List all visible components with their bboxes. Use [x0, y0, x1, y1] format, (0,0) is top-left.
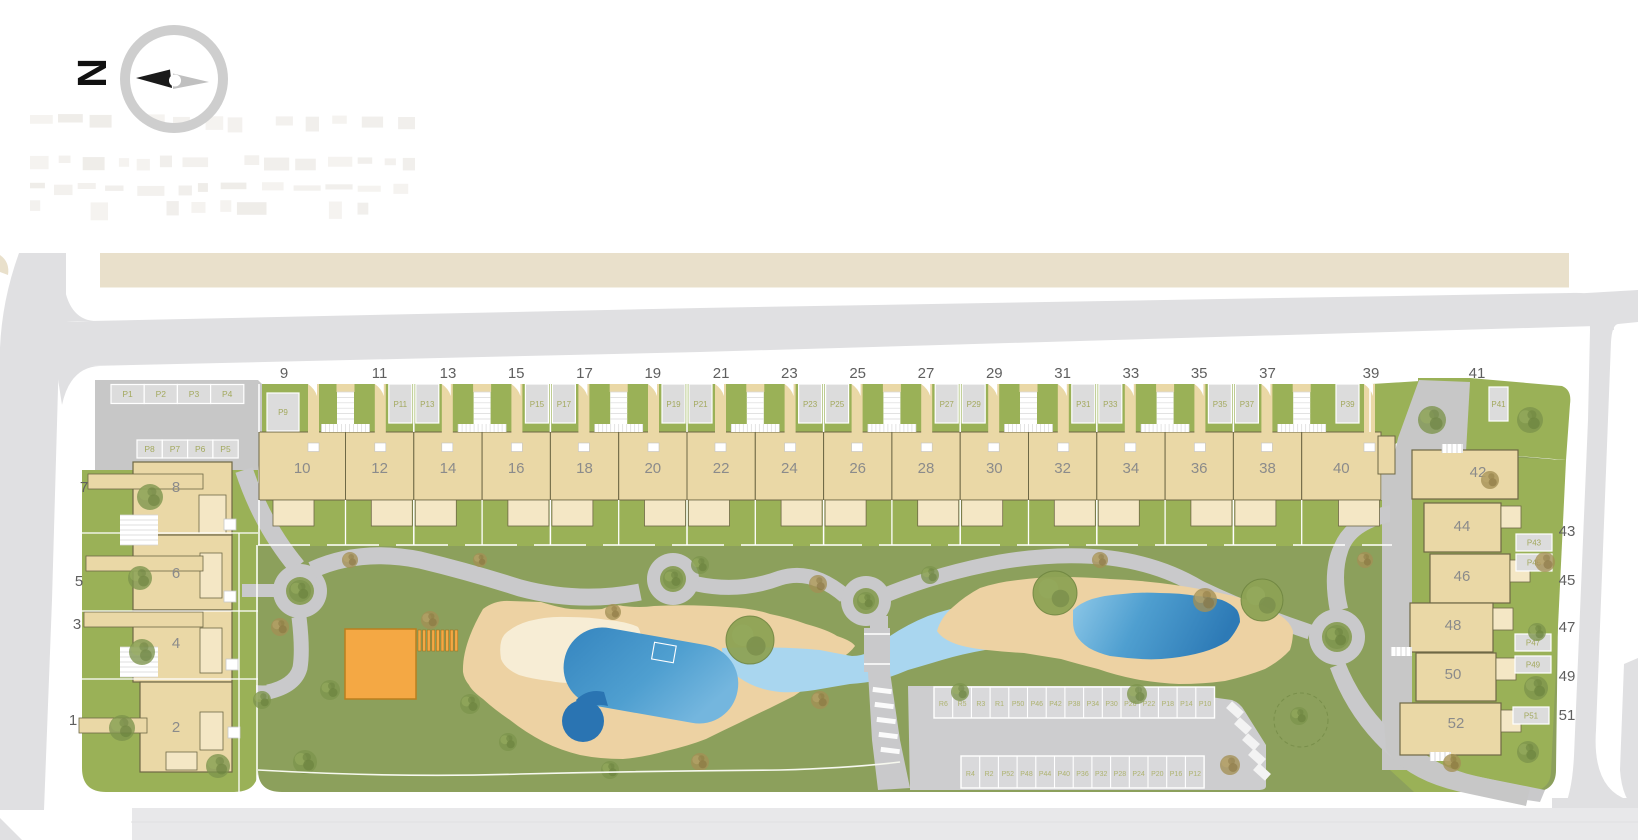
- svg-text:18: 18: [576, 460, 593, 477]
- svg-text:35: 35: [1191, 365, 1208, 382]
- svg-text:31: 31: [1054, 365, 1071, 382]
- svg-text:40: 40: [1333, 460, 1350, 477]
- svg-text:P46: P46: [1031, 701, 1044, 708]
- svg-text:P38: P38: [1068, 701, 1081, 708]
- svg-text:8: 8: [172, 479, 180, 496]
- svg-text:P50: P50: [1012, 701, 1025, 708]
- svg-text:P41: P41: [1491, 400, 1506, 409]
- svg-text:P22: P22: [1143, 701, 1156, 708]
- svg-text:44: 44: [1454, 518, 1471, 535]
- svg-text:27: 27: [918, 365, 935, 382]
- svg-text:P9: P9: [278, 408, 288, 417]
- svg-text:3: 3: [73, 616, 81, 633]
- svg-text:10: 10: [294, 460, 311, 477]
- svg-text:P4: P4: [222, 389, 233, 399]
- svg-text:P42: P42: [1049, 701, 1062, 708]
- svg-text:32: 32: [1054, 460, 1071, 477]
- svg-text:R1: R1: [995, 701, 1004, 708]
- svg-text:R2: R2: [985, 771, 994, 778]
- svg-text:7: 7: [80, 479, 88, 496]
- svg-text:P19: P19: [666, 400, 681, 409]
- svg-text:P40: P40: [1058, 771, 1071, 778]
- svg-text:6: 6: [172, 565, 180, 582]
- svg-text:23: 23: [781, 365, 798, 382]
- svg-text:52: 52: [1448, 715, 1465, 732]
- svg-text:P2: P2: [156, 389, 167, 399]
- svg-text:P1: P1: [122, 389, 133, 399]
- svg-text:P5: P5: [220, 444, 231, 454]
- svg-text:38: 38: [1259, 460, 1276, 477]
- svg-text:P16: P16: [1170, 771, 1183, 778]
- svg-text:33: 33: [1123, 365, 1140, 382]
- svg-text:47: 47: [1559, 619, 1576, 636]
- svg-text:25: 25: [849, 365, 866, 382]
- svg-text:13: 13: [440, 365, 457, 382]
- svg-text:39: 39: [1363, 365, 1380, 382]
- svg-text:P52: P52: [1002, 771, 1015, 778]
- svg-text:P12: P12: [1189, 771, 1202, 778]
- svg-text:26: 26: [849, 460, 866, 477]
- svg-text:P37: P37: [1240, 400, 1255, 409]
- svg-text:P33: P33: [1103, 400, 1118, 409]
- svg-text:P48: P48: [1020, 771, 1033, 778]
- svg-text:R4: R4: [966, 771, 975, 778]
- svg-text:36: 36: [1191, 460, 1208, 477]
- svg-text:15: 15: [508, 365, 525, 382]
- svg-text:P43: P43: [1527, 539, 1542, 548]
- svg-text:R3: R3: [976, 701, 985, 708]
- svg-text:P24: P24: [1132, 771, 1145, 778]
- svg-text:P35: P35: [1213, 400, 1228, 409]
- svg-text:P34: P34: [1087, 701, 1100, 708]
- svg-text:22: 22: [713, 460, 730, 477]
- svg-text:P32: P32: [1095, 771, 1108, 778]
- svg-text:46: 46: [1454, 568, 1471, 585]
- svg-text:P13: P13: [420, 400, 435, 409]
- svg-text:41: 41: [1469, 365, 1486, 382]
- svg-text:9: 9: [280, 365, 288, 382]
- svg-text:29: 29: [986, 365, 1003, 382]
- svg-text:P6: P6: [195, 444, 206, 454]
- svg-text:16: 16: [508, 460, 525, 477]
- svg-text:P29: P29: [967, 400, 982, 409]
- svg-text:P3: P3: [189, 389, 200, 399]
- svg-text:1: 1: [69, 712, 77, 729]
- svg-text:P36: P36: [1076, 771, 1089, 778]
- svg-text:14: 14: [440, 460, 457, 477]
- svg-text:45: 45: [1559, 572, 1576, 589]
- svg-text:P25: P25: [830, 400, 845, 409]
- svg-text:R5: R5: [958, 701, 967, 708]
- svg-text:P7: P7: [170, 444, 181, 454]
- svg-text:21: 21: [713, 365, 730, 382]
- svg-text:19: 19: [644, 365, 661, 382]
- svg-text:P17: P17: [557, 400, 572, 409]
- svg-text:12: 12: [371, 460, 388, 477]
- svg-text:50: 50: [1445, 666, 1462, 683]
- svg-text:P14: P14: [1180, 701, 1193, 708]
- svg-text:P44: P44: [1039, 771, 1052, 778]
- svg-text:37: 37: [1259, 365, 1276, 382]
- svg-text:48: 48: [1445, 617, 1462, 634]
- svg-text:P8: P8: [144, 444, 155, 454]
- svg-text:51: 51: [1559, 707, 1576, 724]
- svg-text:P30: P30: [1105, 701, 1118, 708]
- svg-text:24: 24: [781, 460, 798, 477]
- svg-text:R6: R6: [939, 701, 948, 708]
- svg-text:17: 17: [576, 365, 593, 382]
- svg-text:28: 28: [918, 460, 935, 477]
- svg-text:P10: P10: [1199, 701, 1212, 708]
- svg-text:P18: P18: [1162, 701, 1175, 708]
- svg-text:P28: P28: [1114, 771, 1127, 778]
- svg-text:P23: P23: [803, 400, 818, 409]
- svg-text:P51: P51: [1524, 712, 1539, 721]
- svg-text:43: 43: [1559, 523, 1576, 540]
- svg-text:34: 34: [1123, 460, 1140, 477]
- svg-text:30: 30: [986, 460, 1003, 477]
- svg-text:4: 4: [172, 635, 180, 652]
- svg-text:P27: P27: [940, 400, 955, 409]
- svg-text:49: 49: [1559, 668, 1576, 685]
- svg-text:20: 20: [644, 460, 661, 477]
- svg-text:P39: P39: [1340, 400, 1355, 409]
- svg-text:P15: P15: [530, 400, 545, 409]
- svg-text:11: 11: [372, 365, 388, 382]
- svg-text:2: 2: [172, 719, 180, 736]
- svg-text:N: N: [69, 58, 115, 88]
- svg-text:5: 5: [75, 573, 83, 590]
- svg-text:P49: P49: [1526, 661, 1541, 670]
- svg-text:P11: P11: [393, 400, 407, 409]
- svg-text:P21: P21: [693, 400, 708, 409]
- svg-text:P31: P31: [1076, 400, 1091, 409]
- svg-text:P20: P20: [1151, 771, 1164, 778]
